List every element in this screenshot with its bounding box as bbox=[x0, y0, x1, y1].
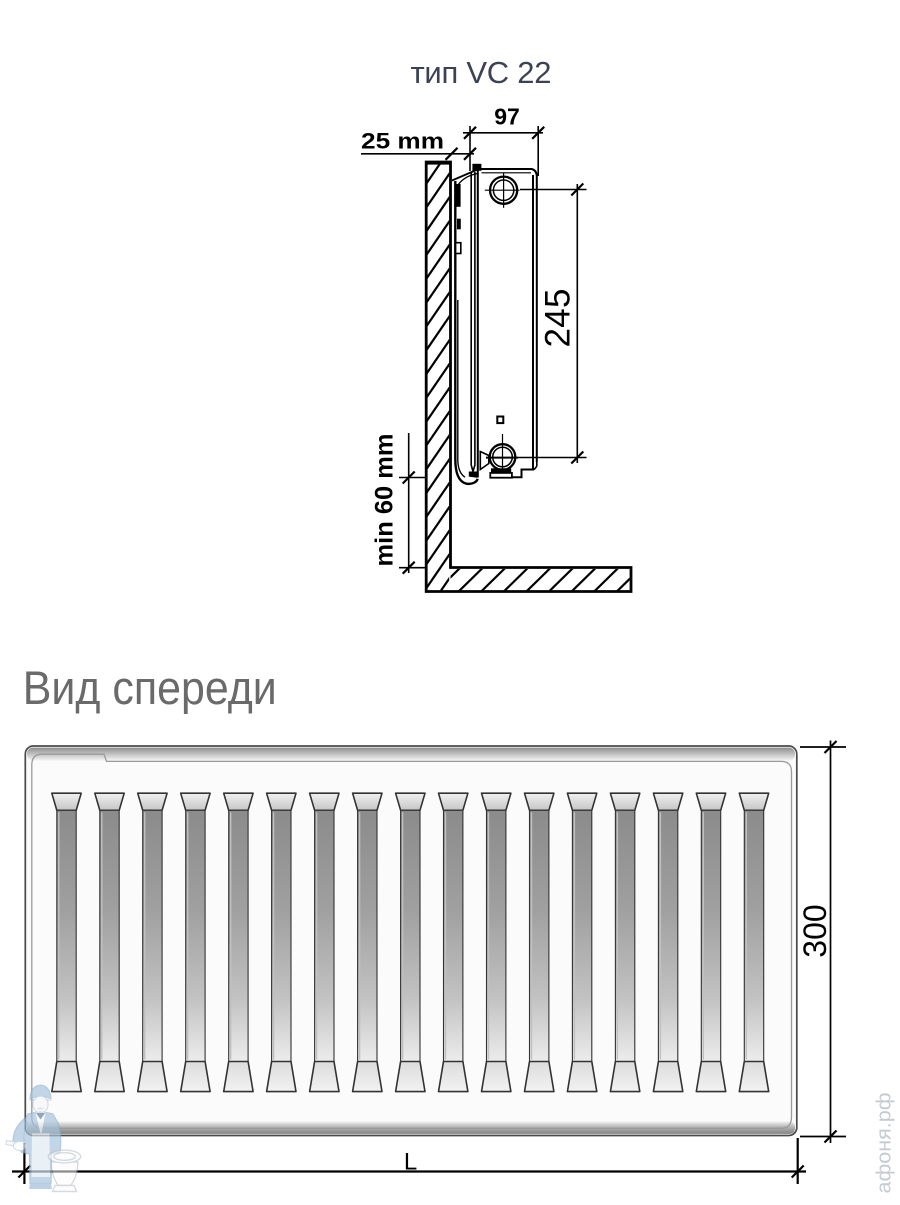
svg-text:Вид спереди: Вид спереди bbox=[23, 661, 277, 714]
svg-text:min 60 mm: min 60 mm bbox=[371, 434, 399, 567]
svg-text:245: 245 bbox=[539, 289, 578, 348]
svg-text:97: 97 bbox=[494, 104, 520, 130]
svg-text:300: 300 bbox=[797, 904, 833, 957]
svg-text:25 mm: 25 mm bbox=[361, 129, 444, 154]
svg-text:тип VC 22: тип VC 22 bbox=[411, 55, 552, 90]
svg-text:афоня.рф: афоня.рф bbox=[874, 1093, 896, 1194]
